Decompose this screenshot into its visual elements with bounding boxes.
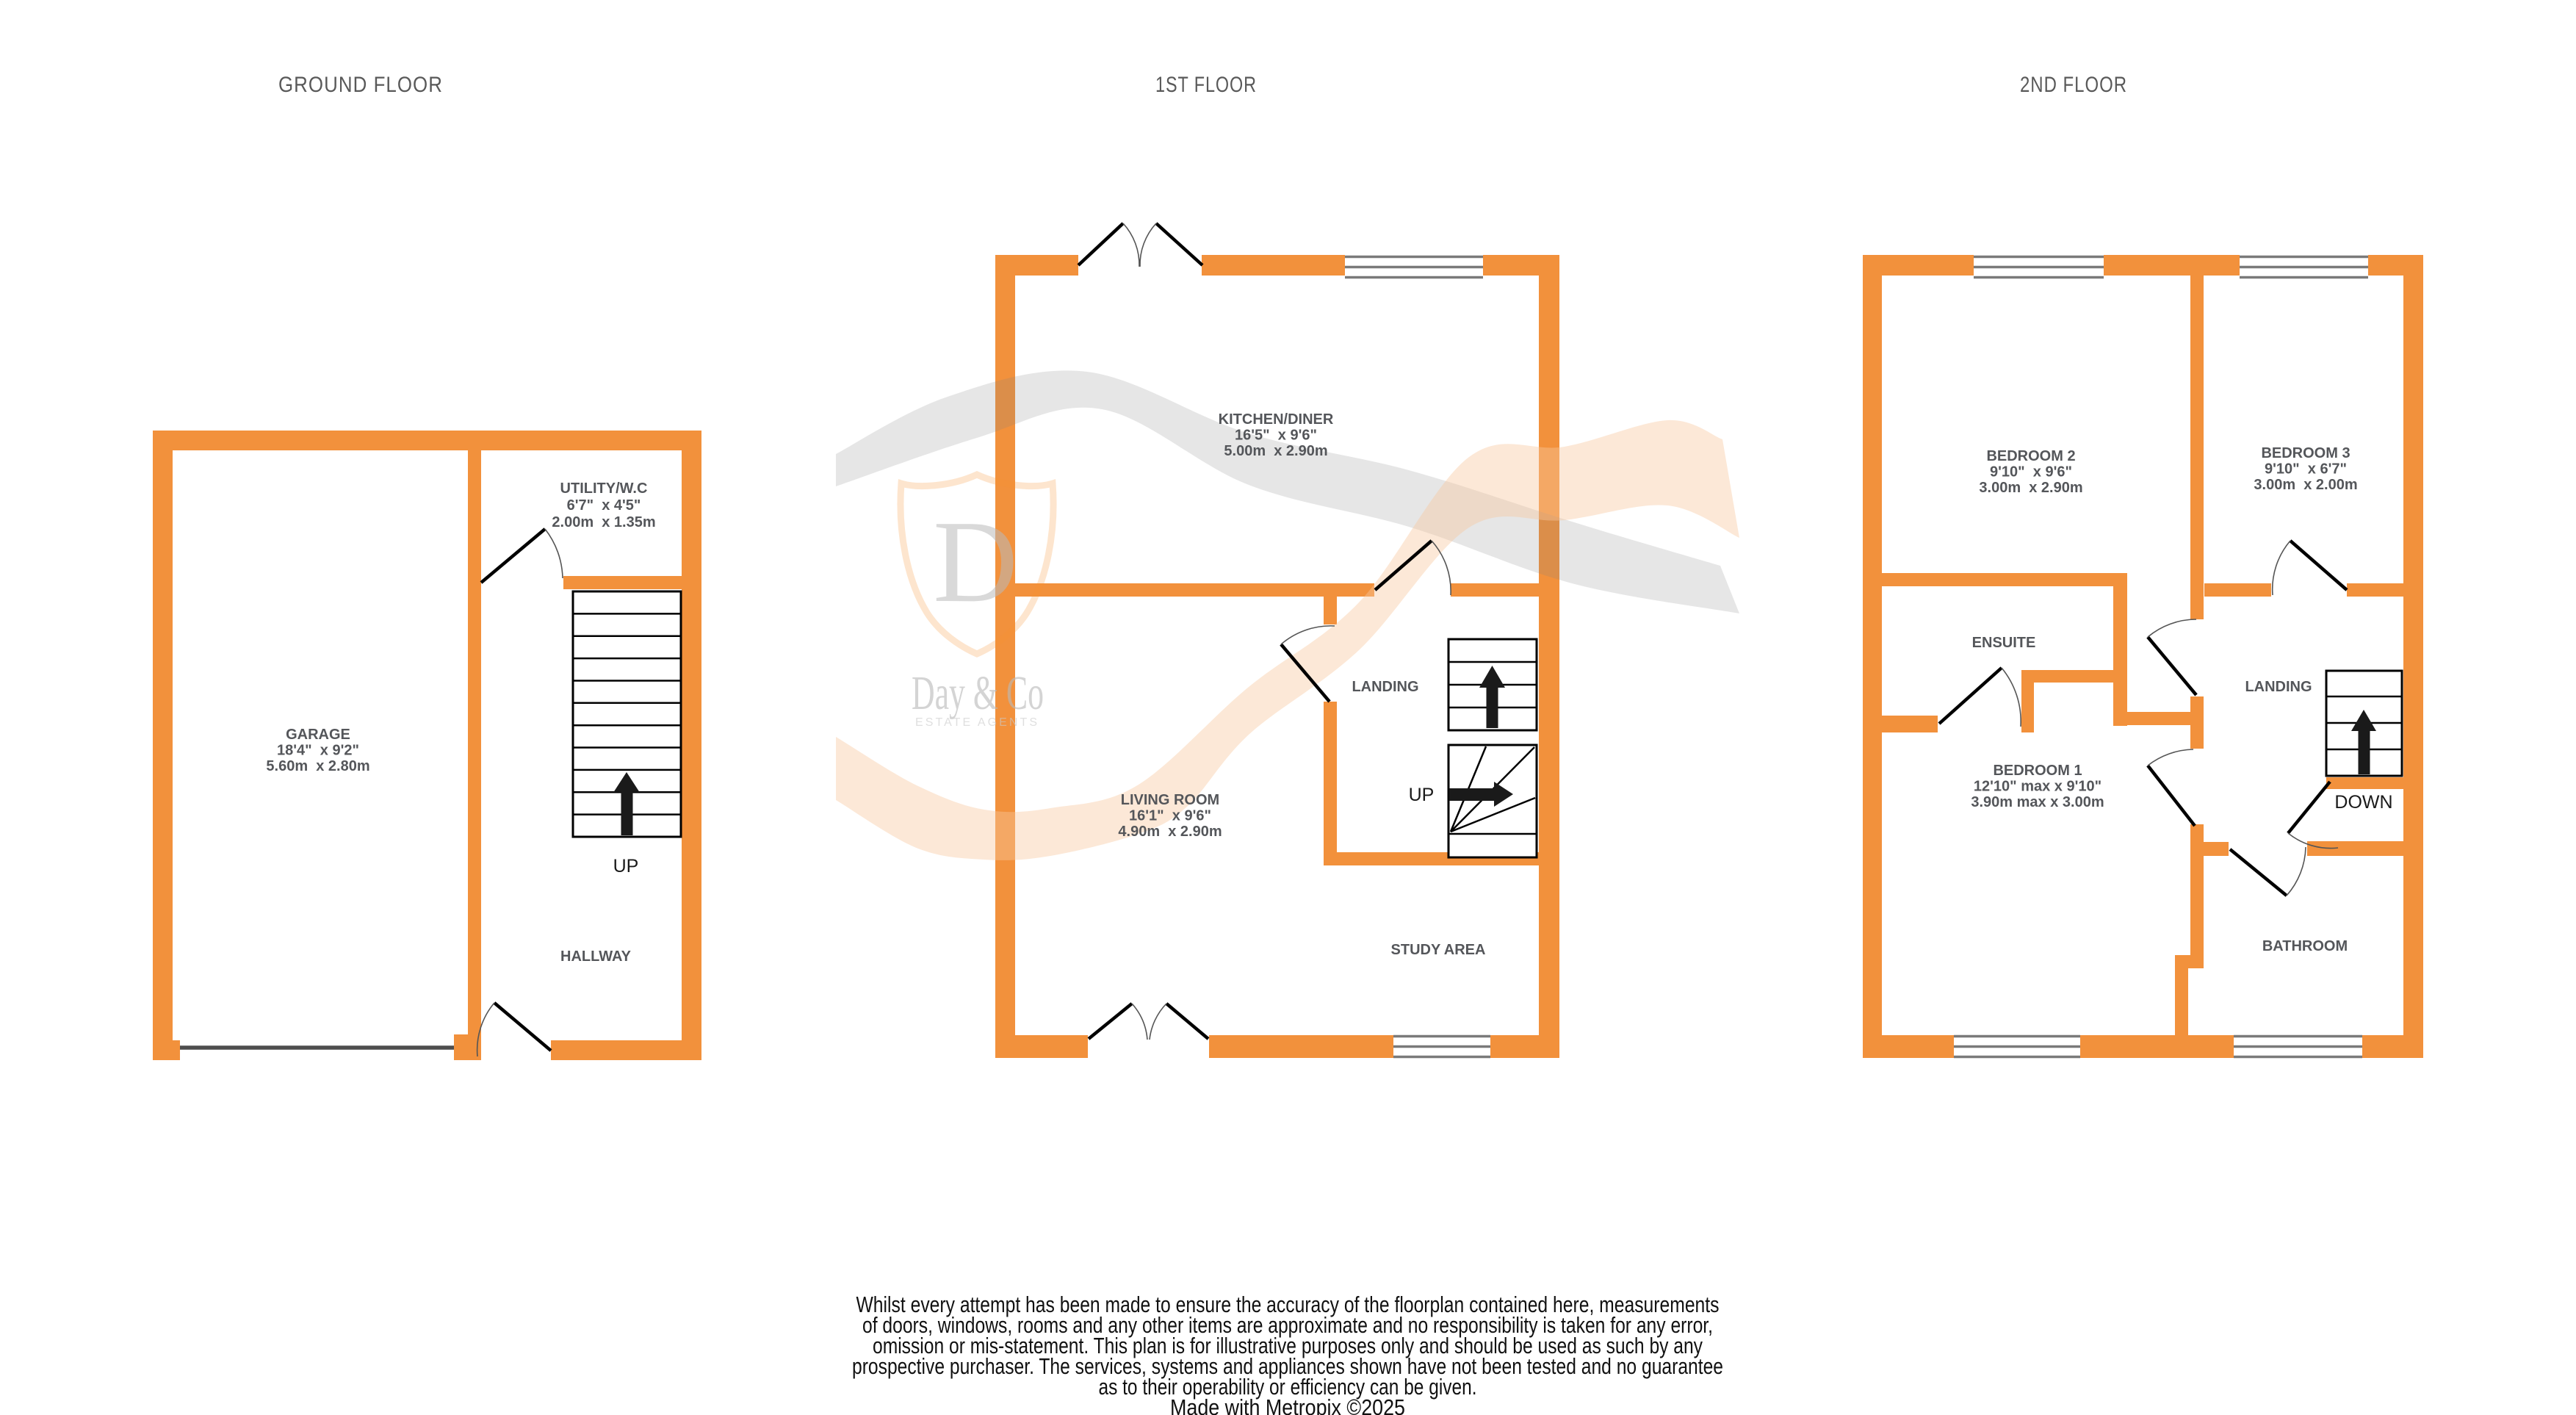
svg-text:12'10" max x 9'10": 12'10" max x 9'10" xyxy=(1974,779,2101,795)
svg-text:BEDROOM 3: BEDROOM 3 xyxy=(2261,445,2350,461)
svg-text:9'10" x 9'6": 9'10" x 9'6" xyxy=(1990,464,2072,480)
svg-text:5.00m x 2.90m: 5.00m x 2.90m xyxy=(1224,443,1327,459)
svg-text:LIVING ROOM: LIVING ROOM xyxy=(1121,792,1219,808)
svg-text:GROUND FLOOR: GROUND FLOOR xyxy=(278,73,443,97)
svg-text:ESTATE AGENTS: ESTATE AGENTS xyxy=(915,716,1040,729)
svg-text:18'4" x 9'2": 18'4" x 9'2" xyxy=(277,743,359,759)
svg-text:9'10" x 6'7": 9'10" x 6'7" xyxy=(2265,461,2347,478)
svg-text:Made with Metropix ©2025: Made with Metropix ©2025 xyxy=(1170,1394,1405,1415)
svg-text:HALLWAY: HALLWAY xyxy=(560,948,632,965)
svg-text:2ND FLOOR: 2ND FLOOR xyxy=(2020,73,2127,97)
svg-text:Day & Co: Day & Co xyxy=(912,666,1044,720)
svg-text:BEDROOM 1: BEDROOM 1 xyxy=(1993,763,2082,779)
svg-text:UP: UP xyxy=(613,856,639,876)
svg-text:5.60m x 2.80m: 5.60m x 2.80m xyxy=(266,758,369,774)
svg-text:UTILITY/W.C: UTILITY/W.C xyxy=(560,480,648,497)
svg-text:3.00m x 2.90m: 3.00m x 2.90m xyxy=(1979,480,2082,496)
svg-text:1ST FLOOR: 1ST FLOOR xyxy=(1155,73,1257,97)
svg-text:4.90m x 2.90m: 4.90m x 2.90m xyxy=(1118,824,1222,840)
svg-text:LANDING: LANDING xyxy=(2245,679,2312,695)
svg-text:STUDY AREA: STUDY AREA xyxy=(1391,942,1486,958)
svg-text:BATHROOM: BATHROOM xyxy=(2262,938,2348,954)
svg-text:D: D xyxy=(933,496,1018,627)
svg-text:BEDROOM 2: BEDROOM 2 xyxy=(1986,448,2075,464)
svg-text:16'1" x 9'6": 16'1" x 9'6" xyxy=(1129,808,1211,824)
svg-text:GARAGE: GARAGE xyxy=(286,727,350,743)
svg-text:UP: UP xyxy=(1409,785,1435,805)
svg-text:6'7" x 4'5": 6'7" x 4'5" xyxy=(567,497,641,514)
svg-text:3.00m x 2.00m: 3.00m x 2.00m xyxy=(2254,477,2357,493)
svg-text:DOWN: DOWN xyxy=(2334,792,2392,813)
svg-text:ENSUITE: ENSUITE xyxy=(1972,635,2036,651)
svg-text:LANDING: LANDING xyxy=(1352,679,1418,695)
svg-text:16'5" x 9'6": 16'5" x 9'6" xyxy=(1235,428,1317,444)
svg-text:KITCHEN/DINER: KITCHEN/DINER xyxy=(1219,411,1334,428)
svg-text:3.90m max x 3.00m: 3.90m max x 3.00m xyxy=(1971,794,2104,810)
svg-text:2.00m x 1.35m: 2.00m x 1.35m xyxy=(552,514,655,530)
